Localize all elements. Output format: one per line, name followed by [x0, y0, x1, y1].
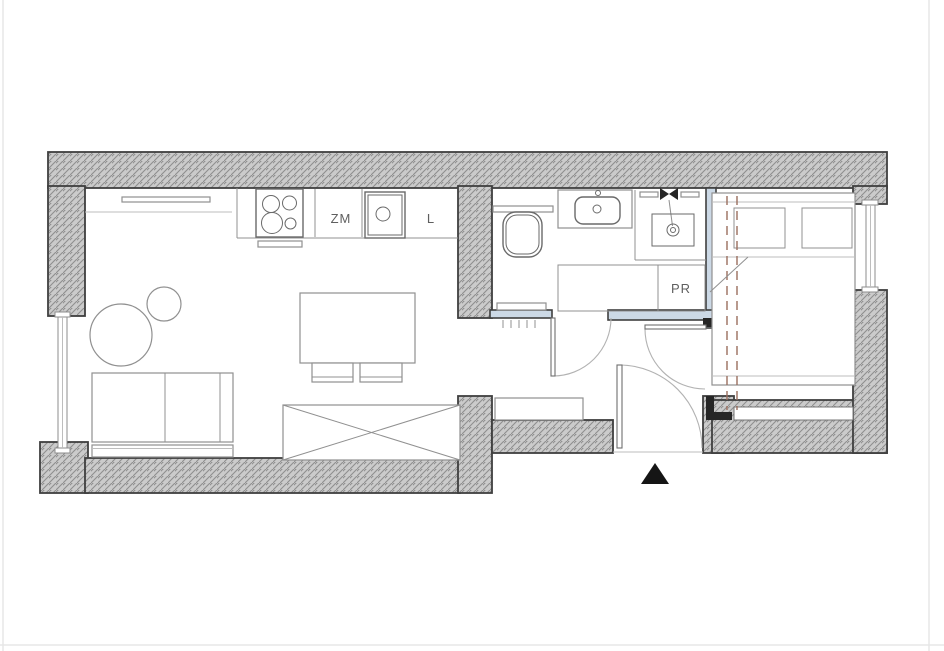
dishwasher-label: ZM: [331, 211, 352, 226]
floor-plan-image: ZM L: [0, 0, 944, 651]
wall-segment: [492, 420, 613, 453]
entrance-door: [613, 365, 703, 452]
hall-cabinet: [495, 398, 583, 420]
chair: [312, 363, 353, 382]
wall-segment: [458, 186, 492, 318]
fridge-label: L: [427, 211, 435, 226]
wall-niche: [734, 407, 853, 420]
washing-machine-label: PR: [671, 281, 691, 296]
washbasin: [558, 190, 632, 228]
bathroom-door: [551, 318, 611, 376]
wall-segment: [48, 152, 887, 188]
toilet: [493, 206, 553, 257]
shower: [635, 188, 706, 260]
wardrobe-crossed: [283, 405, 460, 460]
wall-segment: [48, 186, 85, 316]
window-left: [55, 312, 70, 453]
entrance-marker-icon: [641, 463, 669, 484]
dining-table: [300, 293, 415, 363]
round-table: [90, 287, 181, 366]
partition-bath-south-left: [490, 310, 552, 318]
wall-shelf: [85, 197, 232, 212]
floor-plan-svg: ZM L: [0, 0, 944, 651]
bedroom-door: [645, 325, 706, 389]
shower-valve-icon: [669, 188, 678, 200]
wall-segment: [85, 458, 460, 493]
shower-valve-icon: [660, 188, 669, 200]
chair: [360, 363, 402, 382]
window-right: [862, 200, 878, 292]
door-jamb: [712, 412, 732, 420]
wall-segment: [458, 396, 492, 493]
bed: [712, 193, 855, 385]
kitchen-sink: [365, 192, 405, 238]
sofa: [92, 373, 233, 457]
wall-segment: [853, 290, 887, 453]
